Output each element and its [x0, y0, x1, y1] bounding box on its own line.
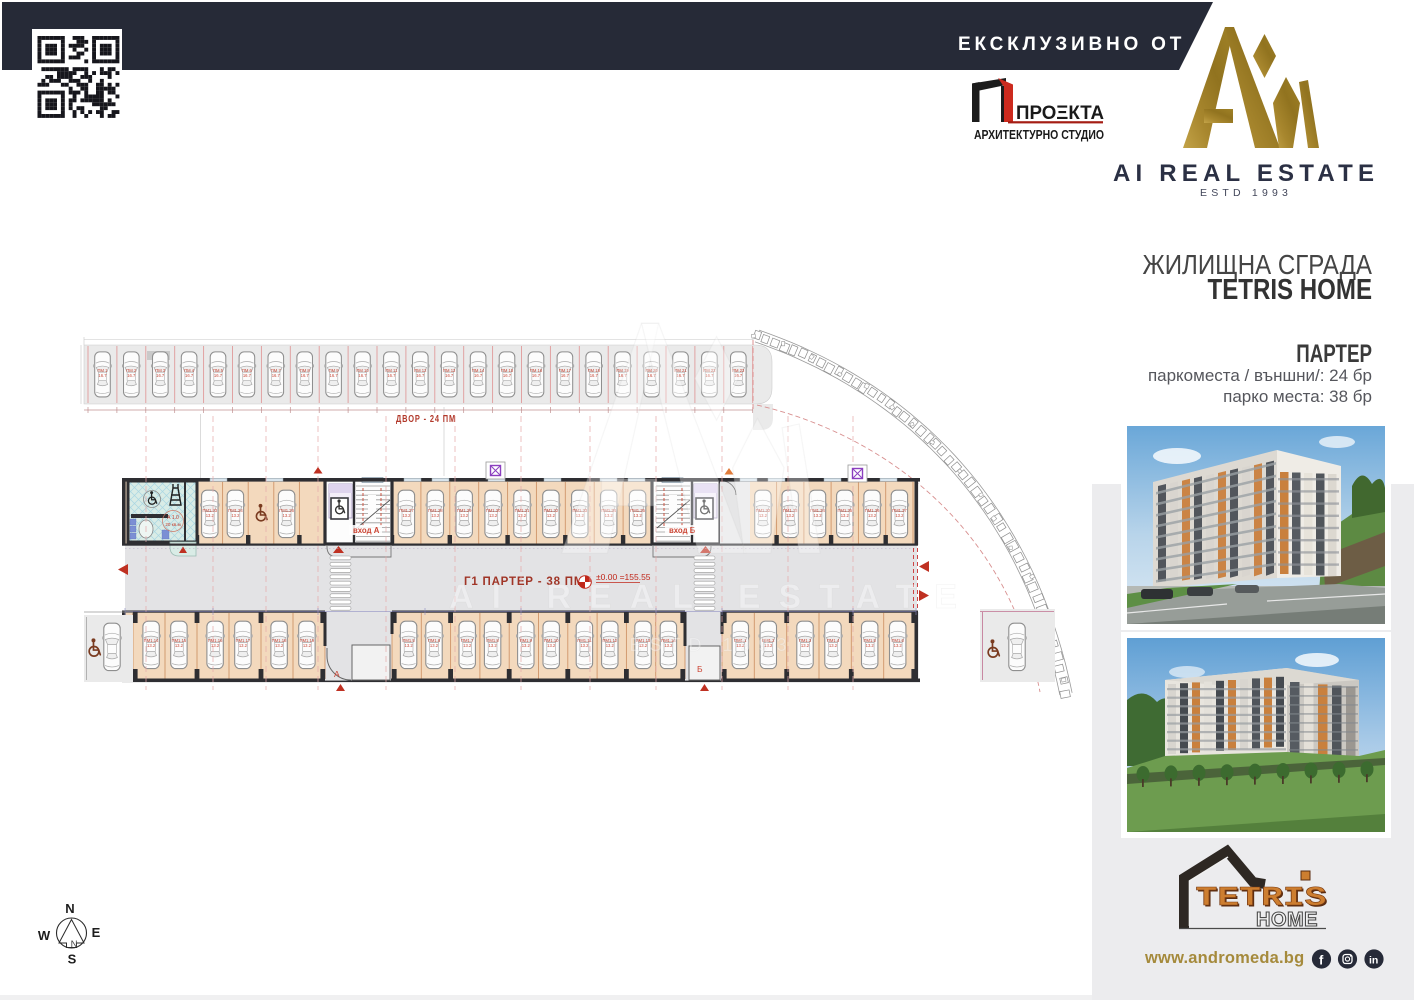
svg-text:16.7: 16.7: [590, 373, 599, 378]
svg-text:16.7: 16.7: [243, 373, 252, 378]
svg-text:16.7: 16.7: [445, 373, 454, 378]
svg-text:13.2: 13.2: [275, 643, 284, 648]
svg-text:13.2: 13.2: [895, 513, 904, 518]
svg-text:13.2: 13.2: [547, 643, 556, 648]
svg-text:13.2: 13.2: [463, 643, 472, 648]
svg-text:13.2: 13.2: [868, 513, 877, 518]
svg-text:13.2: 13.2: [147, 643, 156, 648]
svg-text:ДВОР - 24 ПМ: ДВОР - 24 ПМ: [396, 413, 456, 425]
svg-text:16.7: 16.7: [185, 373, 194, 378]
svg-text:N: N: [65, 901, 74, 916]
svg-text:W: W: [38, 928, 51, 943]
svg-text:16.7: 16.7: [272, 373, 281, 378]
svg-text:S: S: [68, 952, 77, 967]
svg-text:13.2: 13.2: [460, 513, 469, 518]
svg-text:13.2: 13.2: [522, 643, 531, 648]
svg-text:16.7: 16.7: [156, 373, 165, 378]
svg-text:13.2: 13.2: [866, 643, 875, 648]
svg-text:13.2: 13.2: [489, 643, 498, 648]
svg-text:13.2: 13.2: [580, 643, 589, 648]
svg-text:16.7: 16.7: [387, 373, 396, 378]
svg-text:13.2: 13.2: [489, 513, 498, 518]
svg-text:13.2: 13.2: [518, 513, 527, 518]
svg-text:13.2: 13.2: [634, 513, 643, 518]
svg-text:13.2: 13.2: [606, 643, 615, 648]
svg-text:16.7: 16.7: [474, 373, 483, 378]
svg-text:16.7: 16.7: [330, 373, 339, 378]
svg-text:AI REAL ESTATE: AI REAL ESTATE: [449, 578, 975, 616]
svg-text:13.2: 13.2: [894, 643, 903, 648]
svg-text:13.2: 13.2: [801, 643, 810, 648]
svg-text:N: N: [71, 939, 78, 950]
svg-text:13.2: 13.2: [829, 643, 838, 648]
svg-text:16.7: 16.7: [98, 373, 107, 378]
svg-text:16.7: 16.7: [358, 373, 367, 378]
svg-text:13.2: 13.2: [547, 513, 556, 518]
svg-text:Б: Б: [697, 664, 703, 674]
svg-text:16.7: 16.7: [416, 373, 425, 378]
svg-text:13.2: 13.2: [175, 643, 184, 648]
svg-text:13.2: 13.2: [239, 643, 248, 648]
svg-text:16.7: 16.7: [301, 373, 310, 378]
svg-text:E: E: [92, 925, 101, 940]
svg-text:16.7: 16.7: [127, 373, 136, 378]
svg-text:А: А: [334, 669, 340, 679]
svg-text:вход А: вход А: [353, 526, 380, 535]
svg-text:16.7: 16.7: [214, 373, 223, 378]
svg-text:20 кв.м: 20 кв.м: [165, 522, 180, 527]
svg-text:16.7: 16.7: [561, 373, 570, 378]
svg-text:13.2: 13.2: [431, 513, 440, 518]
svg-text:13.2: 13.2: [841, 513, 850, 518]
svg-text:13.2: 13.2: [231, 513, 240, 518]
svg-text:16.7: 16.7: [503, 373, 512, 378]
svg-text:13.2: 13.2: [303, 643, 312, 648]
svg-text:А 1.0: А 1.0: [167, 515, 179, 521]
svg-text:13.2: 13.2: [405, 643, 414, 648]
svg-text:13.2: 13.2: [430, 643, 439, 648]
svg-text:13.2: 13.2: [211, 643, 220, 648]
svg-text:13.2: 13.2: [402, 513, 411, 518]
svg-text:16.7: 16.7: [532, 373, 541, 378]
svg-text:13.2: 13.2: [283, 513, 292, 518]
svg-text:ESTD 1993: ESTD 1993: [629, 635, 794, 655]
